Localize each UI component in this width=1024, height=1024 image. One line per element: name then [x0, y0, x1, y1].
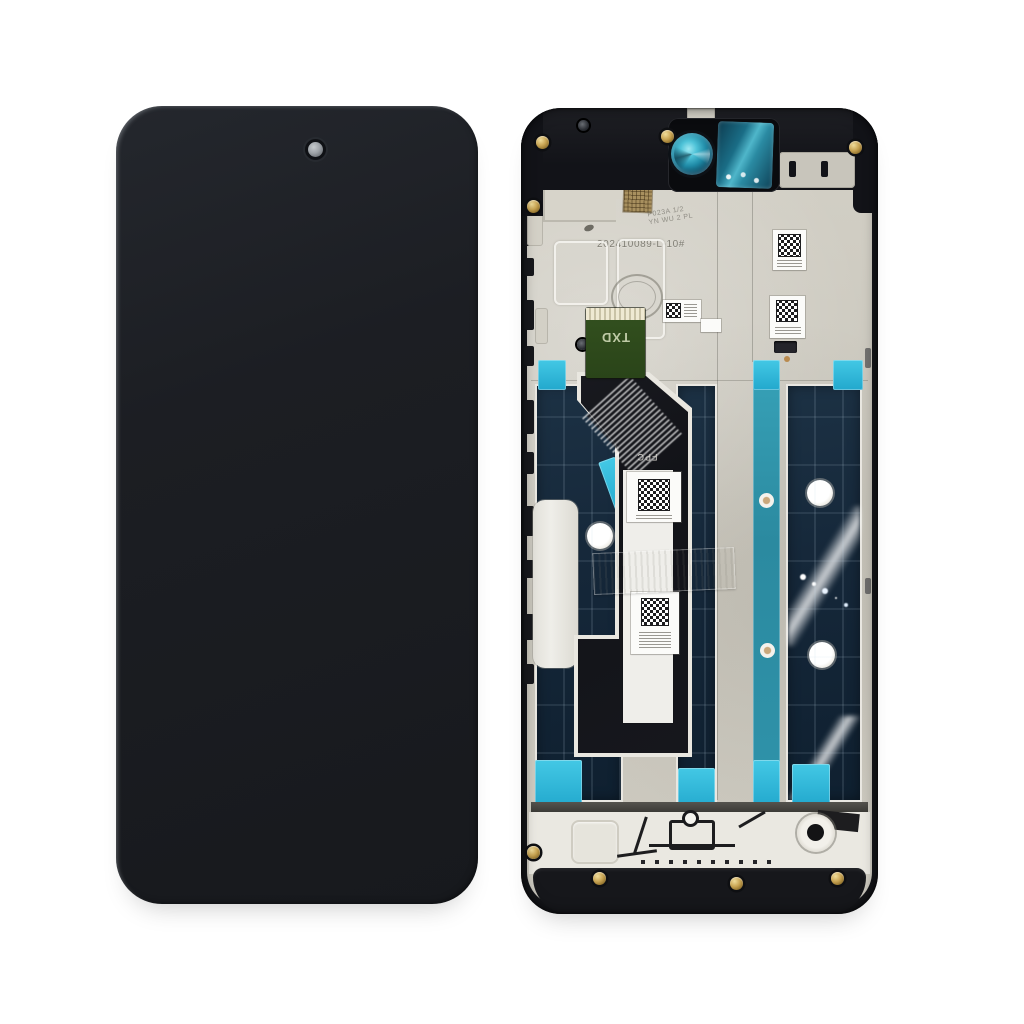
rail-bracket [535, 308, 548, 344]
gold-screw [831, 872, 844, 885]
reflection-sparkle [800, 574, 806, 580]
qr-code [666, 303, 681, 318]
alignment-hole [807, 480, 833, 506]
gold-screw [661, 130, 674, 143]
engraved-line [738, 811, 765, 829]
adhesive-tab-cyan [833, 360, 863, 390]
alignment-hole [587, 523, 613, 549]
flex-connector-board: TXD [586, 308, 645, 378]
bottom-frame-band [533, 868, 866, 914]
adhesive-tab-cyan [792, 764, 830, 806]
qr-code [641, 598, 669, 626]
gold-screw [593, 872, 606, 885]
speaker-housing [529, 812, 870, 874]
antenna-notch [524, 664, 534, 684]
kapton-tape-strip [592, 547, 736, 595]
connector-contacts [586, 308, 645, 320]
camera-lens [671, 133, 713, 175]
gold-screw [849, 141, 862, 154]
engraved-line [633, 816, 648, 853]
gold-screw [527, 846, 540, 859]
metal-seam [752, 192, 753, 362]
qr-code [638, 479, 670, 511]
display-back-panel-right [788, 386, 860, 800]
gold-screw [730, 877, 743, 890]
antenna-notch [524, 346, 534, 366]
front-camera-hole [305, 139, 326, 160]
screw-recess [578, 120, 589, 131]
bracket-slot [821, 161, 828, 177]
qr-sticker [631, 592, 679, 654]
qr-code [776, 300, 798, 322]
antenna-notch [524, 300, 534, 330]
screw-white-center [682, 810, 699, 827]
side-rail-mark [865, 578, 871, 594]
label-sticker [701, 319, 721, 332]
sticker-text-lines [636, 514, 672, 519]
sticker-text-lines [639, 632, 671, 648]
adhesive-tab-cyan [753, 360, 780, 390]
board-slot [774, 341, 797, 353]
gold-screw [536, 136, 549, 149]
embossed-outline [554, 241, 608, 305]
label-sticker [663, 300, 701, 322]
bracket-slot [789, 161, 796, 177]
antenna-notch [524, 258, 534, 276]
adhesive-tab-cyan [535, 760, 582, 808]
display-frame-back: P023A 1/2 YN WU 2 PL 202410089-L-10# FPC [521, 108, 878, 914]
adhesive-tab-cyan [753, 760, 780, 807]
adhesive-tab-cyan [538, 360, 566, 390]
qr-sticker [770, 296, 805, 338]
adhesive-hole [759, 493, 774, 508]
earpiece-bracket [779, 152, 855, 188]
connector-label: TXD [586, 330, 645, 345]
qr-sticker [627, 472, 681, 522]
reflection-streak [788, 506, 860, 646]
rear-camera-module [668, 118, 780, 192]
gold-screw [527, 200, 540, 213]
product-photo: P023A 1/2 YN WU 2 PL 202410089-L-10# FPC [0, 0, 1024, 1024]
speaker-hole-row [641, 860, 771, 864]
alignment-hole [809, 642, 835, 668]
lcd-front-panel [116, 106, 478, 904]
side-rail-mark [865, 348, 871, 368]
metal-seam [717, 192, 718, 800]
camera-glass-window [716, 121, 774, 189]
contact-dot [784, 356, 790, 362]
sticker-text-lines [777, 260, 802, 267]
sticker-text-lines [684, 304, 697, 317]
sticker-text-lines [775, 326, 801, 334]
qr-code [778, 234, 801, 257]
qr-sticker [773, 230, 806, 270]
flex-fpc-label: FPC [627, 452, 667, 462]
mount-hole [807, 824, 824, 841]
camera-mount-ring [797, 814, 835, 852]
antenna-notch [524, 452, 534, 474]
antenna-notch [524, 400, 534, 434]
adhesive-strip-teal [753, 363, 780, 807]
speaker-mesh-pad [571, 820, 619, 864]
lens-reflection [674, 136, 710, 172]
adhesive-hole [760, 643, 775, 658]
shield-plate [533, 500, 578, 668]
engraved-line [649, 844, 735, 847]
top-frame-corner [853, 108, 878, 213]
